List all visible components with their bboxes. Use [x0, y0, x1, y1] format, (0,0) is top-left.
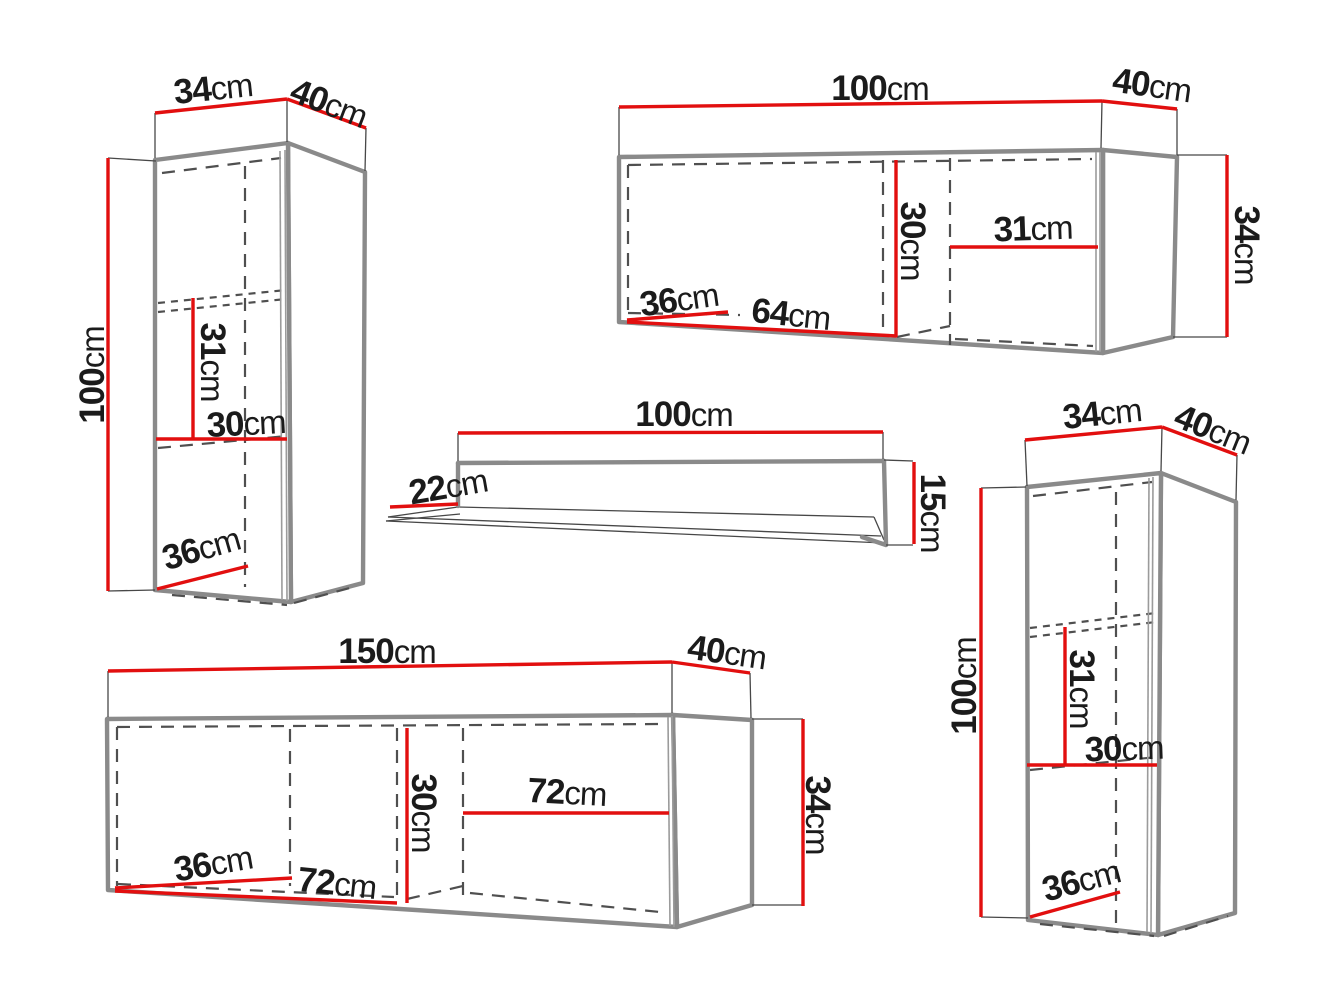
cabinet-side-face	[1158, 473, 1236, 935]
inner-width-label: 30cm	[1084, 727, 1164, 769]
inner-width2-label: 64cm	[750, 290, 833, 337]
depth-label: 40cm	[285, 71, 373, 136]
width-label: 150cm	[338, 632, 435, 671]
inner-height-label: 30cm	[405, 774, 444, 853]
height-label: 34cm	[1228, 206, 1267, 285]
width-label: 100cm	[831, 69, 928, 108]
wall-shelf: 100cm 22cm 15cm	[386, 395, 953, 553]
diagram-canvas: 34cm 40cm 100cm 31cm 30cm 36cm	[0, 0, 1339, 1004]
inner-width-label: 31cm	[993, 207, 1073, 249]
inner-width-label: 30cm	[206, 401, 287, 444]
inner-width-label: 72cm	[527, 770, 608, 813]
cabinet-side-face	[288, 143, 365, 602]
inner-height-label: 31cm	[194, 323, 233, 402]
height-label: 34cm	[799, 776, 838, 855]
inner-height-label: 31cm	[1063, 650, 1102, 729]
height-label: 100cm	[945, 637, 984, 734]
height-label: 15cm	[914, 474, 953, 553]
depth-label: 40cm	[1169, 396, 1257, 462]
width-label: 100cm	[635, 395, 732, 434]
cabinet-wide-top: 100cm 40cm 34cm 30cm 31cm 36cm 64cm	[619, 60, 1267, 353]
cabinet-side-face	[1103, 150, 1177, 353]
cabinet-tall-right: 34cm 40cm 100cm 31cm 30cm 36cm	[945, 389, 1257, 936]
cabinet-tall-left: 34cm 40cm 100cm 31cm 30cm 36cm	[73, 64, 373, 605]
depth-label: 40cm	[685, 627, 769, 677]
cabinet-front-face	[619, 150, 1103, 353]
height-label: 100cm	[73, 326, 112, 423]
inner-width2-label: 72cm	[296, 859, 379, 906]
inner-height-label: 30cm	[894, 202, 933, 281]
shelf-back-panel	[458, 461, 886, 544]
furniture-dimensions-diagram: 34cm 40cm 100cm 31cm 30cm 36cm	[0, 0, 1339, 1004]
cabinet-wide-bottom: 150cm 40cm 34cm 30cm 72cm 36cm 72cm	[107, 627, 838, 927]
cabinet-side-face	[673, 715, 752, 927]
